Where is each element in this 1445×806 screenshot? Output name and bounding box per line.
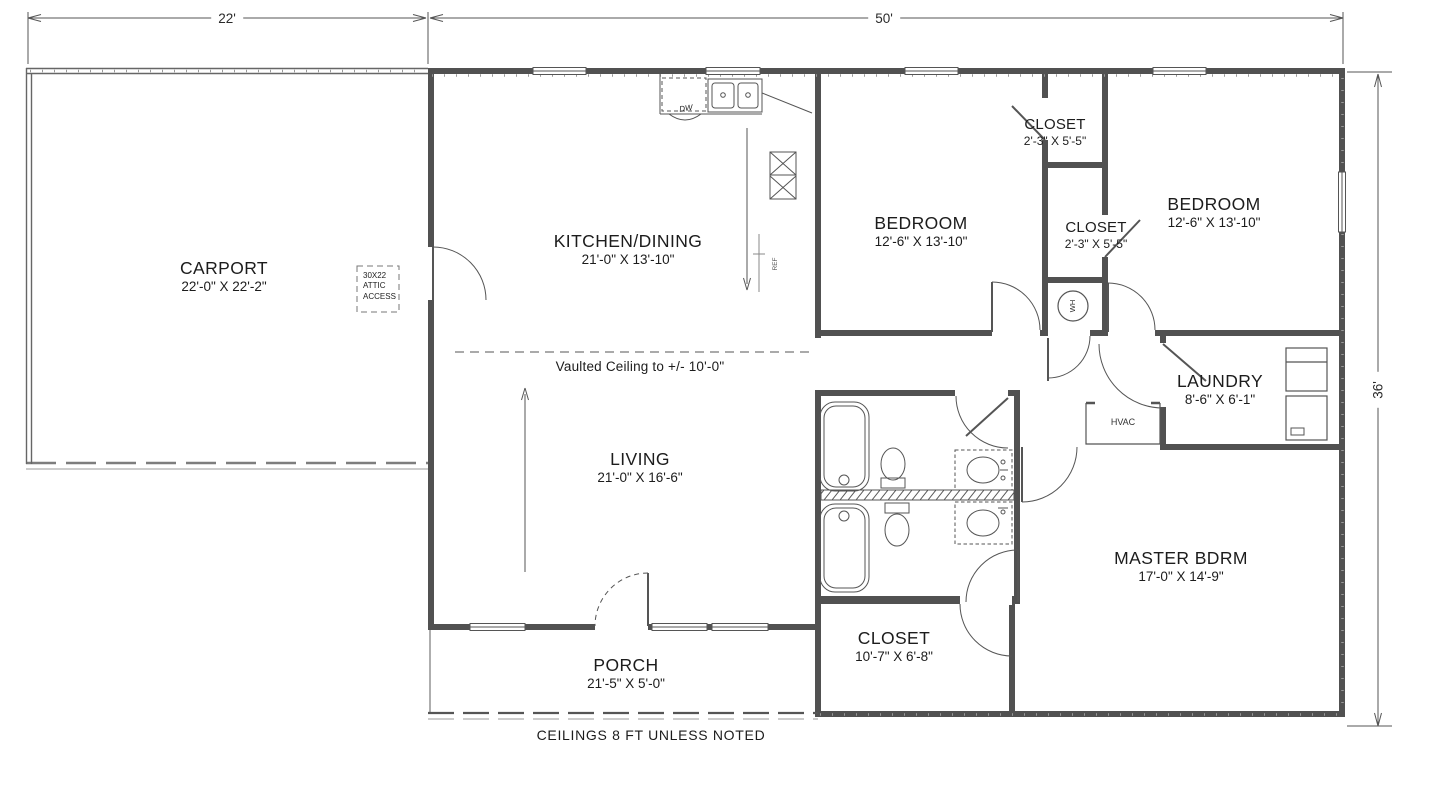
room-size: 21'-0" X 13'-10" xyxy=(554,252,703,268)
room-label-bedroom-2: BEDROOM 12'-6" X 13'-10" xyxy=(1167,194,1260,231)
room-label-carport: CARPORT 22'-0" X 22'-2" xyxy=(180,258,268,295)
room-size: 17'-0" X 14'-9" xyxy=(1114,569,1248,585)
room-label-bedroom-1: BEDROOM 12'-6" X 13'-10" xyxy=(874,213,967,250)
room-name: PORCH xyxy=(587,655,665,676)
room-name: LAUNDRY xyxy=(1177,371,1263,392)
living-arrow xyxy=(522,388,529,572)
attic-access-label: 30X22 ATTIC ACCESS xyxy=(363,271,396,302)
utility-fixtures xyxy=(1058,291,1327,444)
interior-walls xyxy=(815,68,1345,717)
water-heater-label: WH xyxy=(1068,300,1078,313)
room-name: BEDROOM xyxy=(874,213,967,234)
dimension-label-22ft: 22' xyxy=(211,11,243,26)
ceiling-height-note: CEILINGS 8 FT UNLESS NOTED xyxy=(537,727,766,743)
room-size: 22'-0" X 22'-2" xyxy=(180,279,268,295)
room-size: 12'-6" X 13'-10" xyxy=(1167,215,1260,231)
room-size: 21'-0" X 16'-6" xyxy=(597,470,682,486)
dimension-label-50ft: 50' xyxy=(868,11,900,26)
room-size: 8'-6" X 6'-1" xyxy=(1177,392,1263,408)
room-label-kitchen-dining: KITCHEN/DINING 21'-0" X 13'-10" xyxy=(554,231,703,268)
wall-openings xyxy=(427,98,1167,631)
room-name: BEDROOM xyxy=(1167,194,1260,215)
room-label-living: LIVING 21'-0" X 16'-6" xyxy=(597,449,682,486)
dimension-label-36ft: 36' xyxy=(1371,372,1386,408)
bath-fixtures xyxy=(820,402,1014,592)
hvac-label: HVAC xyxy=(1111,417,1135,429)
wall-ticks xyxy=(30,71,1343,715)
room-size: 2'-3" X 5'-5" xyxy=(1065,237,1127,251)
room-label-closet-1: CLOSET 2'-3" X 5'-5" xyxy=(1024,116,1086,148)
room-size: 12'-6" X 13'-10" xyxy=(874,234,967,250)
room-name: MASTER BDRM xyxy=(1114,548,1248,569)
room-label-master-bedroom: MASTER BDRM 17'-0" X 14'-9" xyxy=(1114,548,1248,585)
room-name: CLOSET xyxy=(1024,116,1086,134)
room-label-porch: PORCH 21'-5" X 5'-0" xyxy=(587,655,665,692)
vaulted-ceiling-note: Vaulted Ceiling to +/- 10'-0" xyxy=(556,359,725,374)
dishwasher-label: DW xyxy=(679,103,694,115)
room-label-closet-2: CLOSET 2'-3" X 5'-5" xyxy=(1065,219,1127,251)
room-label-laundry: LAUNDRY 8'-6" X 6'-1" xyxy=(1177,371,1263,408)
room-name: LIVING xyxy=(597,449,682,470)
room-label-master-closet: CLOSET 10'-7" X 6'-8" xyxy=(855,628,933,665)
room-size: 21'-5" X 5'-0" xyxy=(587,676,665,692)
room-name: CLOSET xyxy=(1065,219,1127,237)
room-name: CLOSET xyxy=(855,628,933,649)
floor-plan-canvas: 22' 50' 36' CARPORT 22'-0" X 22'-2" KITC… xyxy=(0,0,1445,806)
room-size: 2'-3" X 5'-5" xyxy=(1024,134,1086,148)
refrigerator-label: REF xyxy=(772,258,780,271)
room-name: CARPORT xyxy=(180,258,268,279)
windows xyxy=(470,68,1346,631)
room-name: KITCHEN/DINING xyxy=(554,231,703,252)
room-size: 10'-7" X 6'-8" xyxy=(855,649,933,665)
